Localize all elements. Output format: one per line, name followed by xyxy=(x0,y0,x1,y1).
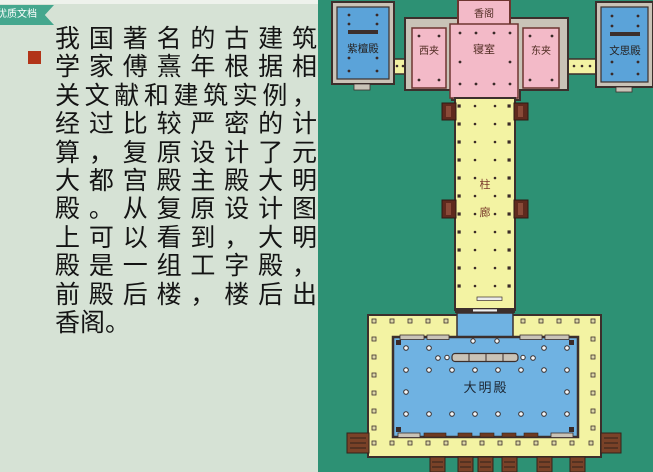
label-xiangge: 香阁 xyxy=(474,7,494,20)
damingdian-hall: 大明殿 xyxy=(393,335,578,438)
body-text-line: 我国著名的古建筑 xyxy=(55,25,317,53)
body-text-line: 学家傅熹年根据相 xyxy=(55,53,317,81)
label-qinshi: 寝室 xyxy=(473,42,495,56)
label-dongjia: 东夹 xyxy=(531,44,551,57)
body-text-line: 关文献和建筑实例， xyxy=(55,82,317,110)
body-text-line: 大都宫殿主殿大明 xyxy=(55,167,317,195)
palace-plan-figure: 紫檀殿 文思殿 香阁 寝室 西夹 xyxy=(318,0,653,472)
dongjia-room xyxy=(523,28,559,88)
body-text-line: 前殿后楼，楼后出 xyxy=(55,281,317,309)
wensi-hall: 文思殿 xyxy=(596,2,653,92)
throne-platform xyxy=(445,354,525,362)
label-damingdian: 大明殿 xyxy=(463,381,508,396)
quality-doc-badge-label: 优质文档 xyxy=(0,9,37,20)
label-xijia: 西夹 xyxy=(419,44,439,57)
label-wensidian: 文思殿 xyxy=(609,44,641,57)
slide-top-edge xyxy=(0,0,318,4)
body-text-line: 经过比较严密的计 xyxy=(55,110,317,138)
body-text-line: 殿是一组工字殿， xyxy=(55,252,317,280)
quality-doc-badge[interactable]: 优质文档 xyxy=(0,5,54,25)
body-paragraph: 我国著名的古建筑 学家傅熹年根据相 关文献和建筑实例， 经过比较严密的计 算，复… xyxy=(55,25,317,337)
body-text-line: 算，复原设计了元 xyxy=(55,139,317,167)
slide: { "badge": { "label": "优质文档" }, "content… xyxy=(0,0,653,472)
body-text-line: 香阁。 xyxy=(55,309,317,337)
xijia-room xyxy=(412,28,446,88)
label-zhulang-bottom: 廊 xyxy=(480,205,491,219)
body-text-line: 殿。从复原设计图 xyxy=(55,195,317,223)
body-text-line: 上可以看到，大明 xyxy=(55,224,317,252)
zitan-hall: 紫檀殿 xyxy=(332,2,394,90)
palace-plan: 紫檀殿 文思殿 香阁 寝室 西夹 xyxy=(318,0,653,472)
label-zitandian: 紫檀殿 xyxy=(347,42,379,55)
zhulang-corridor: 柱 廊 xyxy=(442,98,528,313)
label-zhulang-top: 柱 xyxy=(480,177,491,191)
bullet-icon xyxy=(28,51,41,64)
